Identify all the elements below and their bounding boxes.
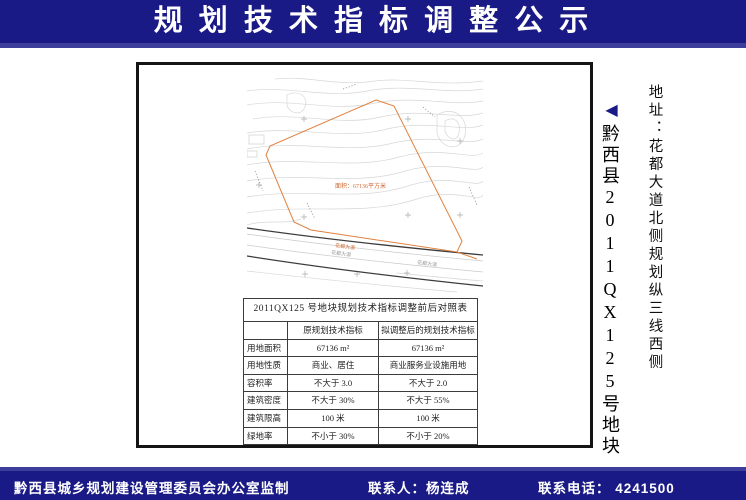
- cell-before: 不大于 30%: [288, 392, 379, 410]
- cell-before: 不大于 3.0: [288, 374, 379, 392]
- site-plan-svg: 面积：67136平方米 花都大道 花都大道 花都大道: [247, 75, 483, 293]
- survey-cross-marks: [256, 116, 463, 277]
- comparison-table: 2011QX125 号地块规划技术指标调整前后对照表 原规划技术指标 拟调整后的…: [243, 298, 478, 445]
- page-title: 规 划 技 术 指 标 调 整 公 示: [154, 7, 593, 36]
- table-header-row: 原规划技术指标 拟调整后的规划技术指标: [244, 321, 478, 339]
- row-label: 建筑密度: [244, 392, 288, 410]
- cell-after: 不大于 55%: [379, 392, 478, 410]
- parcel-id-vertical-label: ◀黔西县2011QX125号地块: [601, 100, 619, 457]
- cell-after: 不大于 2.0: [379, 374, 478, 392]
- table-row: 用地性质 商业、居住 商业服务业设施用地: [244, 357, 478, 375]
- producer-text: 黔西县城乡规划建设管理委员会办公室监制: [14, 477, 290, 497]
- left-triangle-icon: ◀: [602, 100, 619, 124]
- parcel-id-text: 黔西县2011QX125号地块: [600, 124, 620, 457]
- table-row: 用地面积 67136 m² 67136 m²: [244, 339, 478, 357]
- row-label: 容积率: [244, 374, 288, 392]
- table-row: 容积率 不大于 3.0 不大于 2.0: [244, 374, 478, 392]
- row-label: 绿地率: [244, 427, 288, 445]
- table-row: 绿地率 不小于 30% 不小于 20%: [244, 427, 478, 445]
- table-row: 建筑限高 100 米 100 米: [244, 410, 478, 428]
- cell-before: 67136 m²: [288, 339, 379, 357]
- footer-banner: 黔西县城乡规划建设管理委员会办公室监制 联系人：杨连成 联系电话： 424150…: [0, 467, 746, 500]
- col-header-blank: [244, 321, 288, 339]
- content-board: 面积：67136平方米 花都大道 花都大道 花都大道 2011QX125 号地块…: [136, 62, 593, 448]
- col-header-after: 拟调整后的规划技术指标: [379, 321, 478, 339]
- address-vertical-label: 地址：花都大道北侧规划纵三线西侧: [647, 84, 662, 372]
- parcel-area-label: 面积：67136平方米: [335, 182, 386, 190]
- contact-person-text: 联系人：杨连成: [368, 477, 470, 497]
- cell-before: 商业、居住: [288, 357, 379, 375]
- site-plan-map: 面积：67136平方米 花都大道 花都大道 花都大道: [247, 75, 483, 293]
- header-banner: 规 划 技 术 指 标 调 整 公 示: [0, 0, 746, 48]
- row-label: 建筑限高: [244, 410, 288, 428]
- cell-before: 100 米: [288, 410, 379, 428]
- table-row: 建筑密度 不大于 30% 不大于 55%: [244, 392, 478, 410]
- row-label: 用地面积: [244, 339, 288, 357]
- building-footprints: [247, 135, 264, 157]
- table-title: 2011QX125 号地块规划技术指标调整前后对照表: [244, 299, 478, 322]
- cell-after: 67136 m²: [379, 339, 478, 357]
- row-label: 用地性质: [244, 357, 288, 375]
- notice-poster: 规 划 技 术 指 标 调 整 公 示: [0, 0, 746, 500]
- col-header-before: 原规划技术指标: [288, 321, 379, 339]
- road-name-label-gray-2: 花都大道: [417, 259, 438, 268]
- cell-before: 不小于 30%: [288, 427, 379, 445]
- cell-after: 不小于 20%: [379, 427, 478, 445]
- cell-after: 100 米: [379, 410, 478, 428]
- road: [247, 228, 483, 286]
- cell-after: 商业服务业设施用地: [379, 357, 478, 375]
- contact-phone-text: 联系电话： 4241500: [538, 477, 675, 497]
